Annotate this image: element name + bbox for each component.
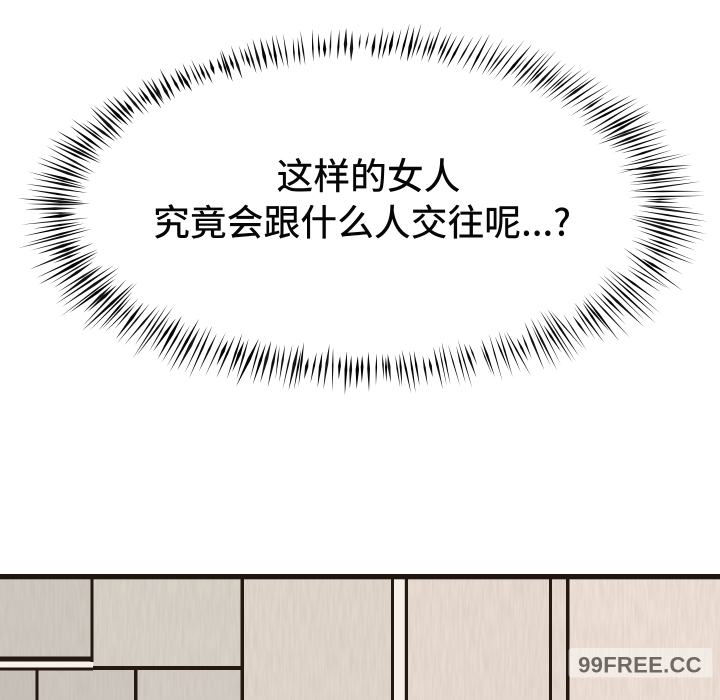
svg-text:99FREE.CC: 99FREE.CC bbox=[578, 653, 702, 678]
